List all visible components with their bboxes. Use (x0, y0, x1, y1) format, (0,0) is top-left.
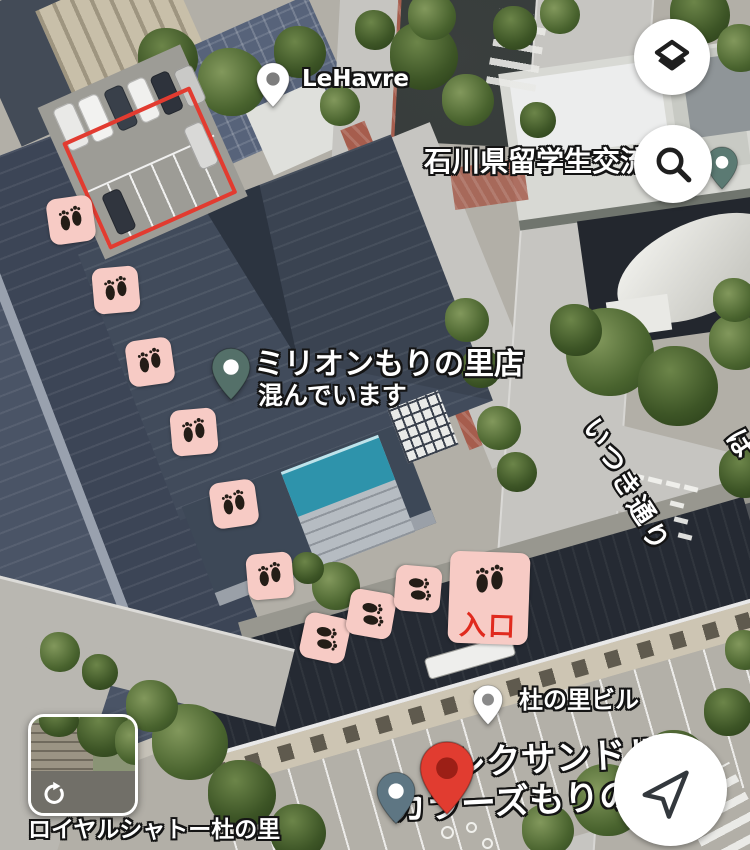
label-million-store: ミリオンもりの里店 (254, 348, 524, 383)
footprint-badge (344, 587, 397, 640)
morinosato-building-pin[interactable] (471, 682, 505, 728)
search-icon (652, 143, 694, 185)
entrance-label: 入口 (458, 603, 517, 644)
footprint-badge (45, 194, 97, 246)
label-streetview-caption: ロイヤルシャトー杜の里 (28, 817, 280, 843)
label-exchange-center: 石川県留学生交流 (424, 146, 648, 178)
layers-icon (652, 37, 692, 77)
label-million-status: 混んでいます (258, 382, 407, 411)
lehavre-pin[interactable] (254, 60, 292, 110)
tree (477, 406, 521, 450)
tree (445, 298, 489, 342)
million-store-pin[interactable] (209, 345, 253, 403)
footprint-badge (169, 407, 219, 457)
tree (82, 654, 118, 690)
tree (520, 102, 556, 138)
map-canvas[interactable]: 入口 LeHavre 石川県留学生交流 ミリオンもりの里店 混んでいます 杜の里… (0, 0, 750, 850)
label-morinosato-building: 杜の里ビル (519, 687, 639, 715)
navigation-icon (640, 759, 702, 821)
tree (292, 552, 324, 584)
tree (493, 6, 537, 50)
footprint-badge (298, 611, 353, 666)
search-button[interactable] (634, 125, 712, 203)
tree (704, 688, 750, 736)
tree (638, 346, 718, 426)
footprint-badge (208, 478, 260, 530)
sv-tree (115, 719, 138, 765)
tree (40, 632, 80, 672)
tree (442, 74, 494, 126)
tree (713, 278, 750, 322)
layers-button[interactable] (634, 19, 710, 95)
tree (550, 304, 602, 356)
footprint-badge (245, 551, 295, 601)
shop-secondary-pin[interactable] (374, 768, 418, 828)
tree (709, 314, 750, 370)
manhole (482, 838, 493, 849)
footprint-badge (393, 564, 443, 614)
tree (355, 10, 395, 50)
loop-arrow-icon (39, 780, 67, 808)
navigate-button[interactable] (614, 733, 727, 846)
tree (497, 452, 537, 492)
footprint-badge (91, 265, 141, 315)
manhole (441, 826, 454, 839)
footprint-badge (124, 336, 176, 388)
streetview-thumbnail[interactable] (28, 714, 138, 816)
label-lehavre: LeHavre (302, 66, 409, 92)
entrance-badge: 入口 (447, 551, 530, 646)
shop-main-pin[interactable] (416, 738, 478, 818)
